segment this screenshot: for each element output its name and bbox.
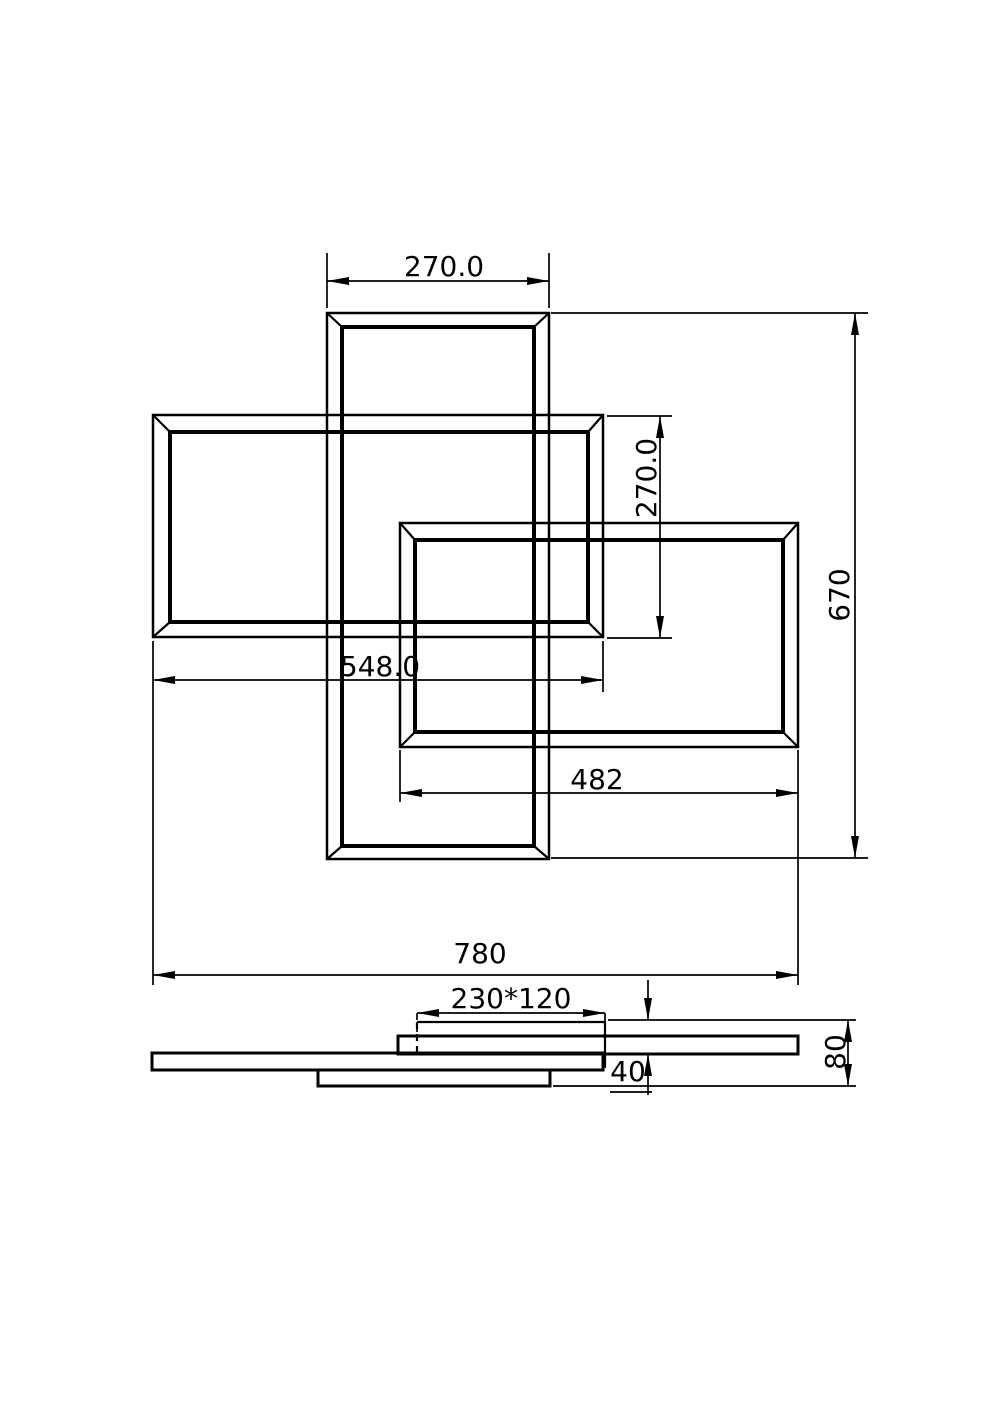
corner-miter [588, 622, 603, 637]
dim-label-270-top: 270.0 [404, 250, 484, 283]
canopy-box [417, 1022, 605, 1068]
frame-right-rect [400, 523, 798, 747]
dim-canopy: 230*120 [417, 982, 605, 1036]
drawing-sheet: 548.0 [0, 0, 992, 1403]
corner-miter [153, 415, 170, 432]
arrowhead-icon [851, 836, 859, 858]
corner-miter [588, 415, 603, 432]
arrowhead-icon [851, 313, 859, 335]
dim-label-670: 670 [823, 568, 856, 621]
frame-right-outer [400, 523, 798, 747]
dim-label-482: 482 [570, 763, 623, 796]
arrowhead-icon [656, 616, 664, 638]
bar-right-frame [398, 1036, 798, 1054]
corner-miter [153, 622, 170, 637]
arrowhead-icon [581, 676, 603, 684]
corner-miter [327, 313, 342, 327]
arrowhead-icon [527, 277, 549, 285]
arrowhead-icon [153, 971, 175, 979]
bar-top-frame [318, 1070, 550, 1086]
arrowhead-icon [776, 789, 798, 797]
corner-miter [783, 732, 798, 747]
plan-view: 548.0 [153, 250, 868, 985]
arrowhead-icon [644, 998, 652, 1020]
dim-left-frame-height: 270.0 [607, 416, 672, 638]
frame-top-rect [327, 313, 549, 859]
arrowhead-icon [776, 971, 798, 979]
corner-miter [400, 732, 415, 747]
arrowhead-icon [400, 789, 422, 797]
side-view: 230*120 40 80 [152, 980, 856, 1095]
dim-label-548: 548.0 [340, 650, 420, 683]
corner-miter [534, 313, 549, 327]
dim-top-frame-width: 270.0 [327, 250, 549, 308]
dim-label-40: 40 [610, 1055, 646, 1088]
arrowhead-icon [327, 277, 349, 285]
arrowhead-icon [656, 416, 664, 438]
corner-miter [534, 846, 549, 859]
arrowhead-icon [153, 676, 175, 684]
corner-miter [400, 523, 415, 540]
corner-miter [327, 846, 342, 859]
dim-label-canopy: 230*120 [451, 982, 572, 1015]
canopy-outline [417, 1022, 605, 1068]
dim-label-780: 780 [453, 937, 506, 970]
dim-label-270-right: 270.0 [630, 438, 663, 518]
arrowhead-icon [583, 1009, 605, 1017]
frame-top-outer [327, 313, 549, 859]
arrowhead-icon [417, 1009, 439, 1017]
dim-overall-width: 780 [153, 937, 798, 979]
dim-label-80: 80 [819, 1034, 852, 1070]
bar-left-frame [152, 1053, 603, 1070]
corner-miter [783, 523, 798, 540]
technical-drawing: 548.0 [0, 0, 992, 1403]
frame-left-inner [170, 432, 588, 622]
dim-overall-depth: 80 [819, 1020, 852, 1086]
frame-top-inner [342, 327, 534, 846]
